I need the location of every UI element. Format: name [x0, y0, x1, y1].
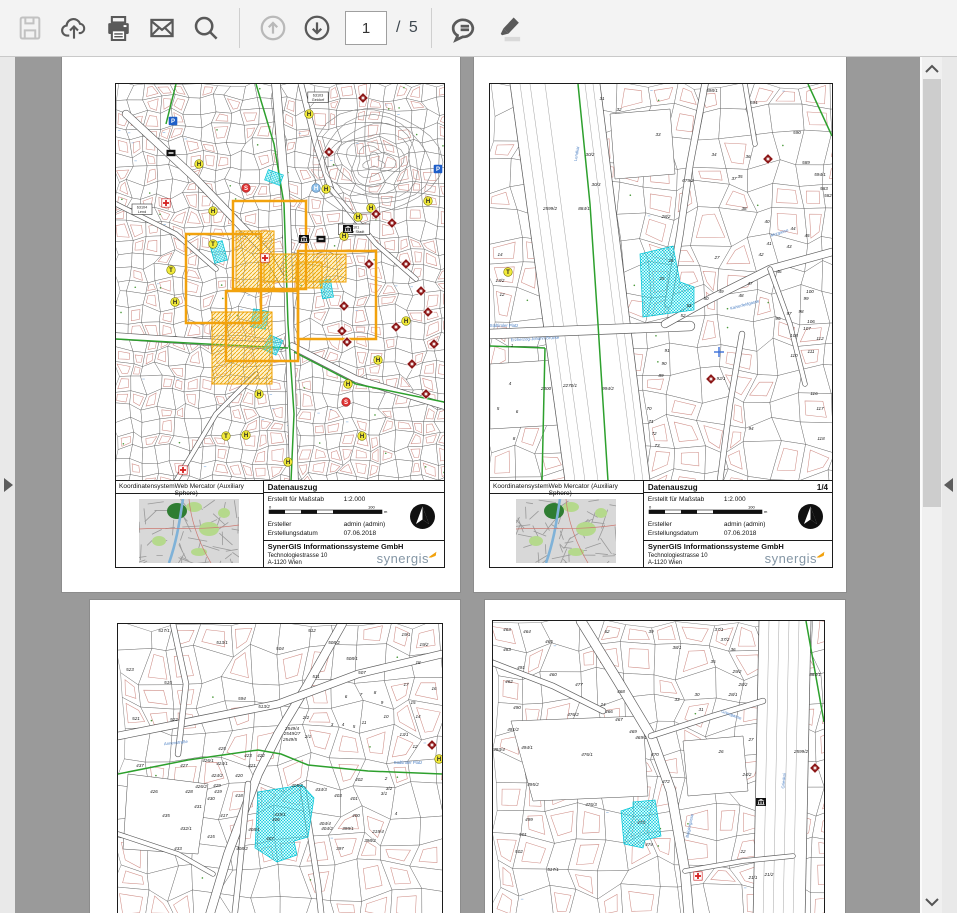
svg-text:Südtiroler Platz: Südtiroler Platz — [490, 323, 518, 328]
scroll-down-button[interactable] — [922, 891, 942, 913]
svg-text:39: 39 — [648, 629, 654, 634]
chevron-up-icon — [925, 64, 939, 73]
svg-text:100: 100 — [748, 505, 755, 510]
creator-label: Ersteller — [648, 520, 724, 529]
svg-text:429: 429 — [213, 783, 221, 788]
svg-text:219/4: 219/4 — [371, 829, 384, 834]
map-frame: 517/1513/1523515594521522513/2512504508/… — [117, 623, 443, 913]
svg-text:Lend: Lend — [138, 210, 146, 214]
svg-text:401: 401 — [350, 796, 358, 801]
search-icon — [191, 13, 221, 43]
svg-text:430: 430 — [207, 796, 215, 801]
svg-text:8: 8 — [374, 690, 377, 695]
cadastral-map-canvas: 517/1513/1523515594521522513/2512504508/… — [118, 624, 442, 913]
svg-text:H: H — [324, 187, 328, 193]
svg-text:36: 36 — [745, 154, 751, 159]
svg-text:37/1: 37/1 — [715, 627, 724, 632]
svg-text:423: 423 — [244, 753, 252, 758]
svg-text:402: 402 — [355, 777, 363, 782]
svg-text:494/1: 494/1 — [521, 745, 533, 750]
creator-value: admin (admin) — [724, 520, 766, 529]
svg-text:S: S — [244, 186, 248, 192]
svg-text:110: 110 — [790, 353, 798, 358]
svg-text:5: 5 — [353, 724, 356, 729]
svg-text:523: 523 — [126, 667, 134, 672]
svg-text:431: 431 — [194, 804, 202, 809]
svg-text:S: S — [344, 400, 348, 406]
svg-text:30/3: 30/3 — [592, 182, 601, 187]
svg-text:464: 464 — [523, 629, 531, 634]
svg-text:30/2: 30/2 — [586, 152, 595, 157]
svg-text:406: 406 — [272, 817, 280, 822]
svg-text:8: 8 — [513, 436, 516, 441]
pdf-page-2: 598/159131323359030/234589594/13730/3679… — [474, 57, 846, 592]
svg-text:H: H — [437, 757, 441, 763]
svg-text:H: H — [376, 358, 380, 364]
company-name: SynerGIS Informationssysteme GmbH — [648, 543, 828, 551]
svg-text:399/1: 399/1 — [342, 826, 354, 831]
svg-text:31: 31 — [698, 707, 704, 712]
svg-text:417: 417 — [220, 813, 228, 818]
toolbar-separator — [239, 8, 240, 48]
svg-text:426/1: 426/1 — [202, 758, 214, 763]
svg-text:4: 4 — [342, 722, 345, 727]
save-icon — [16, 14, 44, 42]
print-button[interactable] — [96, 6, 140, 50]
svg-text:T: T — [224, 434, 228, 440]
svg-text:583: 583 — [820, 186, 828, 191]
coordinate-system-label: Koordinatensystem — [119, 483, 175, 493]
svg-text:508/1: 508/1 — [346, 656, 358, 661]
svg-text:96: 96 — [775, 316, 781, 321]
svg-text:H: H — [286, 460, 290, 466]
scale-value: 1:2.000 — [344, 495, 366, 504]
overview-map — [516, 499, 616, 563]
svg-text:27: 27 — [747, 737, 754, 742]
svg-text:Geidorf: Geidorf — [312, 98, 325, 102]
svg-text:25: 25 — [658, 276, 665, 281]
svg-text:29/2: 29/2 — [732, 669, 742, 674]
svg-text:118: 118 — [817, 436, 825, 441]
svg-text:7: 7 — [360, 692, 363, 697]
sheet-number: 1/4 — [817, 483, 828, 492]
svg-text:598/1: 598/1 — [706, 88, 718, 93]
svg-text:H: H — [426, 199, 430, 205]
synergis-logo: synergis — [765, 555, 824, 563]
svg-text:405/2: 405/2 — [291, 783, 303, 788]
svg-text:432/1: 432/1 — [180, 826, 192, 831]
svg-text:468: 468 — [617, 689, 625, 694]
svg-text:424/2: 424/2 — [211, 773, 223, 778]
svg-text:42: 42 — [758, 252, 764, 257]
svg-text:33: 33 — [655, 132, 661, 137]
svg-text:108: 108 — [790, 333, 798, 338]
svg-text:460: 460 — [549, 672, 557, 677]
logo-pen-icon — [428, 550, 436, 558]
legend-title: Datenauszug — [648, 483, 698, 492]
svg-text:517/1: 517/1 — [547, 867, 559, 872]
svg-text:2599/2: 2599/2 — [793, 749, 808, 754]
date-value: 07.06.2018 — [724, 529, 757, 538]
svg-text:467: 467 — [615, 717, 623, 722]
company-name: SynerGIS Informationssysteme GmbH — [268, 543, 440, 551]
svg-text:470: 470 — [651, 752, 659, 757]
svg-text:m: m — [384, 509, 388, 514]
svg-text:424/1: 424/1 — [216, 761, 228, 766]
chevron-down-icon — [925, 898, 939, 907]
svg-text:35: 35 — [710, 659, 716, 664]
svg-text:415: 415 — [207, 834, 215, 839]
svg-text:28/2: 28/2 — [738, 682, 748, 687]
svg-text:6: 6 — [345, 694, 348, 699]
cadastral-map-canvas: 598/159131323359030/234589594/13730/3679… — [490, 84, 832, 481]
scale-bar: 0 100 m — [268, 504, 390, 517]
svg-text:47: 47 — [747, 281, 753, 286]
search-button[interactable] — [184, 6, 228, 50]
svg-text:98: 98 — [798, 309, 804, 314]
pdf-page-1: 63103Geidorf63104Lend63101Innere StadtPP… — [62, 57, 460, 592]
svg-text:111: 111 — [808, 349, 815, 354]
coordinate-system-label: Koordinatensystem — [493, 483, 549, 493]
svg-text:15: 15 — [410, 700, 416, 705]
upload-button[interactable] — [52, 6, 96, 50]
projection-label: Web Mercator (Auxiliary Sphere) — [175, 483, 260, 493]
page-down-button[interactable] — [295, 6, 339, 50]
svg-text:H: H — [356, 215, 360, 221]
svg-text:419: 419 — [214, 789, 222, 794]
svg-text:463: 463 — [503, 627, 511, 632]
svg-text:512: 512 — [308, 628, 316, 633]
svg-text:49: 49 — [718, 289, 724, 294]
svg-text:32: 32 — [616, 107, 622, 112]
highlight-button[interactable] — [487, 6, 531, 50]
svg-text:51: 51 — [686, 303, 692, 308]
svg-text:884/1: 884/1 — [578, 206, 590, 211]
cadastral-map-canvas: 63103Geidorf63104Lend63101Innere StadtPP… — [116, 84, 444, 481]
svg-text:31: 31 — [599, 96, 605, 101]
svg-text:582: 582 — [824, 193, 832, 198]
svg-text:37/2: 37/2 — [721, 637, 730, 642]
svg-text:H: H — [197, 162, 201, 168]
map-legend: Koordinatensystem Web Mercator (Auxiliar… — [490, 480, 832, 567]
svg-text:40: 40 — [764, 219, 770, 224]
svg-text:30: 30 — [694, 692, 700, 697]
svg-text:19/2: 19/2 — [420, 642, 429, 647]
svg-text:28/1: 28/1 — [728, 692, 738, 697]
svg-text:403: 403 — [334, 793, 342, 798]
svg-text:90: 90 — [661, 361, 667, 366]
svg-text:408/1: 408/1 — [248, 827, 260, 832]
svg-text:18: 18 — [415, 660, 421, 665]
svg-text:21/2: 21/2 — [764, 872, 774, 877]
scrollbar-thumb[interactable] — [923, 79, 941, 507]
svg-text:P: P — [436, 167, 440, 173]
svg-text:T: T — [169, 268, 173, 274]
svg-text:4: 4 — [395, 811, 398, 816]
pdf-toolbar: / 5 — [0, 0, 957, 57]
svg-text:491: 491 — [517, 665, 525, 670]
svg-text:469: 469 — [629, 729, 637, 734]
svg-text:70: 70 — [646, 406, 652, 411]
svg-text:428: 428 — [185, 789, 193, 794]
svg-text:26: 26 — [717, 749, 724, 754]
svg-text:2599/2: 2599/2 — [542, 206, 557, 211]
svg-text:0: 0 — [649, 505, 652, 510]
svg-text:T: T — [506, 270, 510, 276]
synergis-logo: synergis — [377, 555, 436, 563]
svg-text:1: 1 — [511, 343, 514, 348]
svg-text:2549/5: 2549/5 — [282, 737, 297, 742]
scale-label: Erstellt für Maßstab — [648, 495, 724, 504]
cadastral-map-canvas: 463464465623937/137/238/1363548349146046… — [493, 621, 824, 913]
svg-text:H: H — [404, 319, 408, 325]
svg-text:490: 490 — [513, 705, 521, 710]
svg-text:2: 2 — [384, 776, 388, 781]
svg-text:48: 48 — [738, 293, 744, 298]
svg-text:590: 590 — [793, 130, 801, 135]
page-up-icon — [258, 13, 288, 43]
svg-text:2300: 2300 — [540, 386, 552, 391]
svg-text:493/4: 493/4 — [493, 747, 505, 752]
svg-text:679/2: 679/2 — [682, 178, 694, 183]
svg-text:10: 10 — [383, 714, 389, 719]
svg-text:38: 38 — [741, 206, 747, 211]
svg-text:6: 6 — [516, 409, 519, 414]
svg-text:107: 107 — [803, 326, 811, 331]
comment-button[interactable] — [443, 6, 487, 50]
page-number-input[interactable] — [345, 11, 387, 45]
svg-text:594/1: 594/1 — [814, 172, 826, 177]
svg-text:473: 473 — [637, 820, 645, 825]
svg-text:62: 62 — [604, 629, 610, 634]
scroll-up-button[interactable] — [922, 57, 942, 79]
email-icon — [147, 13, 177, 43]
svg-text:35: 35 — [737, 174, 743, 179]
page-up-button[interactable] — [251, 6, 295, 50]
svg-text:517/1: 517/1 — [158, 628, 170, 633]
svg-text:41: 41 — [766, 241, 772, 246]
svg-text:Südtiroler Platz: Südtiroler Platz — [394, 760, 422, 765]
svg-text:33: 33 — [674, 697, 680, 702]
svg-text:521: 521 — [132, 716, 140, 721]
svg-text:469/1: 469/1 — [635, 735, 647, 740]
map-frame: 598/159131323359030/234589594/13730/3679… — [489, 83, 833, 568]
svg-text:H: H — [211, 209, 215, 215]
pdf-page-3: 517/1513/1523515594521522513/2512504508/… — [90, 600, 460, 913]
svg-text:26: 26 — [667, 258, 674, 263]
svg-text:116: 116 — [810, 391, 818, 396]
svg-text:H: H — [369, 206, 373, 212]
svg-text:2/2: 2/2 — [302, 715, 310, 720]
email-button[interactable] — [140, 6, 184, 50]
svg-text:495/2: 495/2 — [527, 782, 539, 787]
svg-text:476/1: 476/1 — [581, 752, 593, 757]
svg-text:511: 511 — [312, 674, 320, 679]
svg-text:H: H — [244, 433, 248, 439]
svg-text:34: 34 — [711, 152, 717, 157]
svg-text:94: 94 — [748, 426, 754, 431]
svg-text:476/2: 476/2 — [567, 712, 579, 717]
svg-text:0: 0 — [269, 505, 272, 510]
svg-text:502: 502 — [515, 849, 523, 854]
svg-text:477: 477 — [575, 682, 583, 687]
svg-text:12: 12 — [412, 744, 418, 749]
right-panel-handle[interactable] — [944, 478, 953, 492]
svg-text:99: 99 — [803, 296, 809, 301]
svg-text:435: 435 — [162, 813, 170, 818]
svg-text:63103: 63103 — [313, 93, 324, 97]
svg-text:P: P — [171, 119, 175, 125]
svg-text:22: 22 — [739, 849, 746, 854]
svg-text:14: 14 — [497, 252, 503, 257]
svg-text:38/1: 38/1 — [673, 645, 682, 650]
svg-text:499: 499 — [525, 817, 533, 822]
svg-text:407: 407 — [266, 836, 274, 841]
print-icon — [104, 14, 133, 43]
svg-text:434/3: 434/3 — [315, 787, 327, 792]
svg-text:426: 426 — [150, 789, 158, 794]
scale-label: Erstellt für Maßstab — [268, 495, 344, 504]
svg-text:4: 4 — [509, 381, 512, 386]
svg-text:2549/27: 2549/27 — [283, 731, 301, 736]
highlighter-icon — [493, 13, 524, 44]
svg-text:472: 472 — [662, 779, 670, 784]
comment-icon — [449, 13, 480, 44]
svg-text:2270/1: 2270/1 — [562, 383, 577, 388]
svg-text:9: 9 — [381, 700, 384, 705]
svg-text:89: 89 — [658, 373, 664, 378]
svg-text:44: 44 — [790, 226, 796, 231]
map-legend: Koordinatensystem Web Mercator (Auxiliar… — [116, 480, 444, 567]
page-down-icon — [302, 13, 332, 43]
svg-text:m: m — [764, 509, 768, 514]
svg-text:11: 11 — [362, 720, 367, 725]
left-panel-handle[interactable] — [4, 478, 13, 492]
svg-text:591: 591 — [750, 100, 758, 105]
svg-text:H: H — [342, 234, 346, 240]
svg-text:H: H — [314, 186, 318, 192]
svg-text:100: 100 — [806, 289, 814, 294]
svg-text:100: 100 — [368, 505, 375, 510]
svg-text:73: 73 — [654, 443, 660, 448]
svg-text:H: H — [307, 112, 311, 118]
svg-text:501: 501 — [519, 832, 527, 837]
svg-text:513/1: 513/1 — [216, 640, 228, 645]
svg-text:427: 427 — [180, 763, 188, 768]
svg-text:63104: 63104 — [137, 205, 148, 209]
svg-text:17: 17 — [403, 682, 409, 687]
overview-map — [139, 499, 239, 563]
svg-text:466: 466 — [605, 709, 613, 714]
svg-text:H: H — [173, 300, 177, 306]
svg-text:418: 418 — [235, 793, 243, 798]
svg-text:884/1: 884/1 — [809, 672, 821, 677]
svg-text:400: 400 — [352, 813, 360, 818]
svg-text:3/1: 3/1 — [381, 791, 388, 796]
projection-label: Web Mercator (Auxiliary Sphere) — [549, 483, 640, 493]
svg-text:398/2: 398/2 — [364, 838, 376, 843]
svg-text:474: 474 — [645, 842, 653, 847]
svg-text:483: 483 — [503, 647, 511, 652]
save-button[interactable] — [8, 6, 52, 50]
svg-text:T: T — [211, 242, 215, 248]
pdf-page-4: 463464465623937/137/238/1363548349146046… — [485, 600, 845, 913]
svg-text:24/2: 24/2 — [742, 772, 752, 777]
svg-text:112: 112 — [816, 336, 824, 341]
svg-text:43: 43 — [786, 244, 792, 249]
svg-text:27: 27 — [713, 255, 720, 260]
north-arrow-icon — [409, 503, 436, 530]
svg-text:433: 433 — [174, 846, 182, 851]
date-value: 07.06.2018 — [344, 529, 377, 538]
svg-text:508/2: 508/2 — [328, 640, 340, 645]
svg-text:465: 465 — [545, 639, 553, 644]
map-frame: 63103Geidorf63104Lend63101Innere StadtPP… — [115, 83, 445, 568]
svg-text:106: 106 — [807, 319, 815, 324]
svg-text:437: 437 — [136, 763, 144, 768]
svg-text:36: 36 — [730, 647, 736, 652]
svg-text:994/2: 994/2 — [602, 386, 614, 391]
svg-text:28/2: 28/2 — [661, 214, 671, 219]
map-frame: 463464465623937/137/238/1363548349146046… — [492, 620, 825, 913]
creator-label: Ersteller — [268, 520, 344, 529]
svg-text:52: 52 — [680, 313, 686, 318]
svg-text:3: 3 — [331, 722, 334, 727]
svg-text:92/1: 92/1 — [717, 376, 726, 381]
legend-title: Datenauszug — [268, 483, 318, 492]
svg-text:21/1: 21/1 — [748, 875, 758, 880]
svg-text:5: 5 — [497, 406, 500, 411]
svg-text:522: 522 — [170, 717, 178, 722]
svg-text:425: 425 — [218, 746, 226, 751]
svg-text:117: 117 — [816, 406, 824, 411]
svg-text:504: 504 — [276, 646, 284, 651]
svg-text:421: 421 — [248, 763, 256, 768]
scale-value: 1:2.000 — [724, 495, 746, 504]
date-label: Erstellungsdatum — [648, 529, 724, 538]
svg-text:14: 14 — [415, 714, 421, 719]
svg-text:45: 45 — [804, 233, 810, 238]
svg-text:422: 422 — [257, 753, 265, 758]
svg-text:72: 72 — [651, 431, 657, 436]
pdf-viewer-canvas: 63103Geidorf63104Lend63101Innere StadtPP… — [0, 57, 957, 913]
svg-text:462: 462 — [505, 679, 513, 684]
upload-icon — [59, 13, 89, 43]
svg-text:507: 507 — [358, 670, 366, 675]
svg-text:589: 589 — [802, 160, 810, 165]
svg-text:397: 397 — [336, 846, 344, 851]
svg-text:426/2: 426/2 — [195, 784, 207, 789]
svg-text:2/1: 2/1 — [304, 734, 312, 739]
svg-text:H: H — [257, 392, 261, 398]
svg-text:24: 24 — [599, 702, 606, 707]
svg-text:408/2: 408/2 — [236, 846, 248, 851]
svg-text:404/2: 404/2 — [321, 826, 333, 831]
creator-value: admin (admin) — [344, 520, 386, 529]
svg-text:37: 37 — [731, 176, 737, 181]
logo-pen-icon — [816, 550, 824, 558]
scrollbar-track[interactable] — [920, 57, 942, 913]
svg-text:476/3: 476/3 — [585, 802, 597, 807]
scale-bar: 0 100 m — [648, 504, 770, 517]
svg-text:491/2: 491/2 — [507, 727, 519, 732]
page-count-label: / 5 — [396, 19, 420, 37]
svg-text:91: 91 — [664, 348, 670, 353]
svg-text:97: 97 — [786, 311, 792, 316]
svg-text:420: 420 — [235, 773, 243, 778]
svg-text:19/1: 19/1 — [402, 632, 411, 637]
svg-text:50: 50 — [703, 296, 709, 301]
